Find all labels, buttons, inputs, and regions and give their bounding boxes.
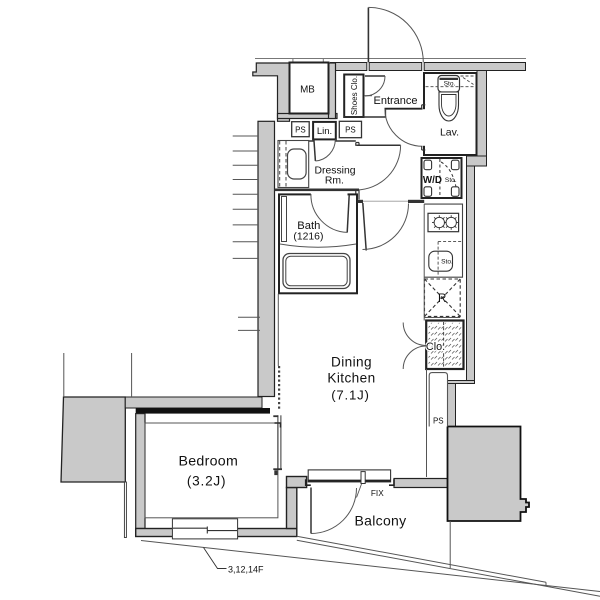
svg-text:(1216): (1216) xyxy=(293,231,323,242)
svg-text:PS: PS xyxy=(433,417,444,426)
svg-text:Shoes Clo.: Shoes Clo. xyxy=(350,76,359,115)
svg-text:MB: MB xyxy=(300,85,315,96)
svg-text:W/D: W/D xyxy=(423,175,442,186)
svg-text:3,12,14F: 3,12,14F xyxy=(228,565,264,575)
svg-text:Bath: Bath xyxy=(297,220,320,232)
svg-text:PS: PS xyxy=(345,126,356,135)
svg-text:Balcony: Balcony xyxy=(355,513,407,529)
svg-text:Rm.: Rm. xyxy=(325,176,344,187)
svg-text:Clo.: Clo. xyxy=(426,341,445,353)
svg-text:(3.2J): (3.2J) xyxy=(187,474,227,489)
svg-text:Sto.: Sto. xyxy=(444,81,456,88)
svg-text:Sto.: Sto. xyxy=(441,259,453,266)
svg-text:Entrance: Entrance xyxy=(373,95,417,107)
svg-text:FIX: FIX xyxy=(371,489,384,498)
svg-text:Lin.: Lin. xyxy=(317,126,332,137)
svg-text:Sto.: Sto. xyxy=(445,177,457,184)
svg-text:R: R xyxy=(438,293,446,305)
svg-text:Kitchen: Kitchen xyxy=(327,370,375,385)
svg-text:Bedroom: Bedroom xyxy=(178,454,238,470)
svg-text:(7.1J): (7.1J) xyxy=(331,388,370,403)
svg-text:Dining: Dining xyxy=(331,354,372,369)
svg-text:PS: PS xyxy=(295,126,306,135)
svg-text:Lav.: Lav. xyxy=(440,127,459,139)
